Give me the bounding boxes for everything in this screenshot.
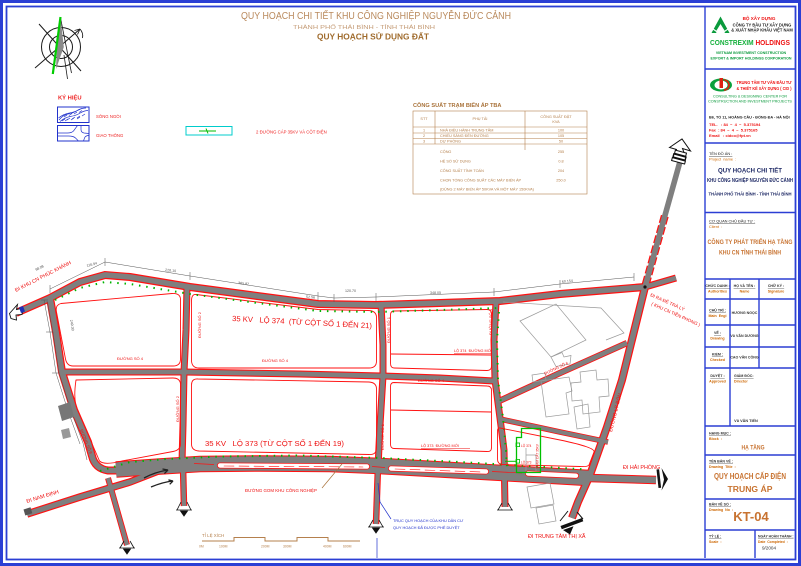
svg-text:TRẠM CẮT 35KV: TRẠM CẮT 35KV <box>535 443 540 469</box>
svg-text:1: 1 <box>423 129 425 133</box>
svg-text:CHỦ TRÌ :: CHỦ TRÌ : <box>709 308 726 313</box>
svg-text:KÝ HIỆU: KÝ HIỆU <box>58 94 82 102</box>
svg-text:HẠ TẦNG: HẠ TẦNG <box>742 445 765 452</box>
svg-text:Signature: Signature <box>768 290 785 294</box>
svg-text:0.8: 0.8 <box>558 160 563 164</box>
svg-text:50: 50 <box>559 140 563 144</box>
svg-text:& THIẾT KẾ XÂY DỰNG ( CID ): & THIẾT KẾ XÂY DỰNG ( CID ) <box>737 85 792 91</box>
svg-text:Name: Name <box>740 290 750 294</box>
svg-text:ĐƯỜNG SỐ 4: ĐƯỜNG SỐ 4 <box>262 358 289 363</box>
svg-text:ĐƯỜNG SỐ 4: ĐƯỜNG SỐ 4 <box>117 356 144 361</box>
svg-text:QUY HOẠCH CẤP ĐIỆN: QUY HOẠCH CẤP ĐIỆN <box>714 470 786 481</box>
svg-text:TRUNG ÁP: TRUNG ÁP <box>728 484 773 494</box>
svg-text:NGÀY HOÀN THÀNH :: NGÀY HOÀN THÀNH : <box>758 534 794 539</box>
svg-text:CONSTRUCTION AND INVESTMENT PR: CONSTRUCTION AND INVESTMENT PROJECTS <box>708 100 792 104</box>
svg-text:CÔNG SUẤT TRẠM BIẾN ÁP TBA: CÔNG SUẤT TRẠM BIẾN ÁP TBA <box>413 101 501 109</box>
svg-text:EXPORT & IMPORT HOLDINGS CORPO: EXPORT & IMPORT HOLDINGS CORPORATION <box>711 57 792 61</box>
svg-text:52.56: 52.56 <box>306 295 315 300</box>
svg-text:STT: STT <box>420 117 428 121</box>
svg-text:ĐI TRUNG TÂM THỊ XÃ: ĐI TRUNG TÂM THỊ XÃ <box>528 533 586 540</box>
svg-text:348.05: 348.05 <box>430 291 441 295</box>
svg-text:ĐƯỜNG GOM KHU CÔNG NGHIỆP: ĐƯỜNG GOM KHU CÔNG NGHIỆP <box>245 488 317 493</box>
svg-text:KT-04: KT-04 <box>733 509 769 524</box>
svg-text:Email : cidco@fpt.vn: Email : cidco@fpt.vn <box>709 133 751 138</box>
svg-text:9/2004: 9/2004 <box>762 546 776 551</box>
svg-text:CỘNG: CỘNG <box>440 149 451 154</box>
svg-text:255: 255 <box>558 150 564 154</box>
svg-text:KHU CÔNG NGHIỆP NGUYỄN ĐỨC CẢN: KHU CÔNG NGHIỆP NGUYỄN ĐỨC CẢNH <box>707 176 793 184</box>
svg-text:Drawing No :: Drawing No : <box>709 508 733 512</box>
svg-text:204: 204 <box>558 169 564 173</box>
svg-text:BẢN VẼ SỐ :: BẢN VẼ SỐ : <box>709 502 731 507</box>
svg-text:KHU CN TỈNH THÁI BÌNH: KHU CN TỈNH THÁI BÌNH <box>719 248 781 257</box>
svg-text:CHỌN TỔNG CÔNG SUẤT CÁC MÁY BI: CHỌN TỔNG CÔNG SUẤT CÁC MÁY BIẾN ÁP <box>440 178 521 183</box>
svg-text:CONSTREXIM HOLDINGS: CONSTREXIM HOLDINGS <box>710 38 790 47</box>
svg-text:VIETNAM INVESTMENT CONSTRUCTIO: VIETNAM INVESTMENT CONSTRUCTION <box>716 51 787 55</box>
svg-text:300M: 300M <box>283 545 292 549</box>
svg-text:2 ĐƯỜNG CÁP 35KV VÀ CỘT ĐIỆN: 2 ĐƯỜNG CÁP 35KV VÀ CỘT ĐIỆN <box>256 130 327 135</box>
svg-text:400M: 400M <box>323 545 332 549</box>
svg-text:600M: 600M <box>343 545 352 549</box>
svg-text:100M: 100M <box>219 545 228 549</box>
svg-text:100: 100 <box>558 129 564 133</box>
svg-text:& XUẤT NHẬP KHẨU VIỆT NAM: & XUẤT NHẬP KHẨU VIỆT NAM <box>731 28 793 33</box>
svg-text:(DÙNG 2 MÁY BIẾN ÁP 50KVA VÀ M: (DÙNG 2 MÁY BIẾN ÁP 50KVA VÀ MỘT MÁY 150… <box>440 187 535 192</box>
svg-text:CONSULTING & DESIGNING CENTER: CONSULTING & DESIGNING CENTER FOR <box>713 95 787 99</box>
svg-text:QUY HOẠCH SỬ DỤNG ĐẤT: QUY HOẠCH SỬ DỤNG ĐẤT <box>317 32 429 42</box>
svg-text:GIAO THÔNG: GIAO THÔNG <box>96 133 124 138</box>
svg-text:QUY HOẠCH ĐÃ ĐƯỢC PHÊ DUYỆT: QUY HOẠCH ĐÃ ĐƯỢC PHÊ DUYỆT <box>393 525 460 530</box>
svg-text:THÀNH PHỐ THÁI BÌNH - TỈNH THÁ: THÀNH PHỐ THÁI BÌNH - TỈNH THÁI BÌNH <box>293 24 435 31</box>
svg-text:CHIẾU SÁNG ĐÈN ĐƯỜNG: CHIẾU SÁNG ĐÈN ĐƯỜNG <box>440 133 489 138</box>
svg-text:2: 2 <box>423 134 425 138</box>
svg-text:TEL. : 84 − 4 − 5.375194: TEL. : 84 − 4 − 5.375194 <box>709 122 761 127</box>
svg-text:TRUNG TÂM TƯ VẤN ĐẦU TƯ: TRUNG TÂM TƯ VẤN ĐẦU TƯ <box>737 79 792 85</box>
svg-text:TỈ LỆ XÍCH: TỈ LỆ XÍCH <box>202 533 224 538</box>
svg-text:TÊN ĐỒ ÁN :: TÊN ĐỒ ÁN : <box>709 151 732 156</box>
svg-text:Main Engi: Main Engi <box>709 314 727 318</box>
svg-text:Vũ VĂN TIẾN: Vũ VĂN TIẾN <box>734 418 758 423</box>
svg-text:250.0: 250.0 <box>556 179 566 183</box>
svg-text:35 KV LỘ 373 (TỪ CỘT SỐ 1 ĐẾ: 35 KV LỘ 373 (TỪ CỘT SỐ 1 ĐẾN 19) <box>205 438 344 448</box>
svg-text:CHỮ KÝ :: CHỮ KÝ : <box>768 283 784 288</box>
svg-text:Scale :: Scale : <box>709 540 722 544</box>
svg-text:HẠNG MỤC :: HẠNG MỤC : <box>709 432 731 436</box>
svg-text:LỘ 373 ĐƯỜNG MỚI: LỘ 373 ĐƯỜNG MỚI <box>421 443 459 448</box>
svg-text:CƠ QUAN CHỦ ĐẦU TƯ :: CƠ QUAN CHỦ ĐẦU TƯ : <box>709 219 755 224</box>
svg-text:120.70: 120.70 <box>345 289 356 293</box>
svg-text:Director: Director <box>734 380 748 384</box>
svg-text:B6, TỔ 11, HOÀNG CẦU - ĐỐNG ĐA: B6, TỔ 11, HOÀNG CẦU - ĐỐNG ĐA - HÀ NỘI <box>709 115 790 120</box>
svg-text:CÔNG SUẤT ĐẶT: CÔNG SUẤT ĐẶT <box>540 114 572 119</box>
svg-text:PHỤ TẢI: PHỤ TẢI <box>473 116 488 121</box>
svg-text:KVA: KVA <box>552 120 560 124</box>
svg-text:Date Completed :: Date Completed : <box>758 540 788 544</box>
svg-text:QUY HOẠCH CHI TIẾT KHU CÔNG NG: QUY HOẠCH CHI TIẾT KHU CÔNG NGHIỆP NGUYỄ… <box>241 9 511 22</box>
svg-text:ĐƯỜNG SỐ 2: ĐƯỜNG SỐ 2 <box>197 311 202 338</box>
svg-text:Block :: Block : <box>709 437 722 441</box>
svg-text:ĐƯỜNG SỐ 4: ĐƯỜNG SỐ 4 <box>418 378 445 383</box>
svg-text:BỘ XÂY DỰNG: BỘ XÂY DỰNG <box>743 14 776 21</box>
svg-text:DỰ PHÒNG: DỰ PHÒNG <box>440 139 461 144</box>
svg-text:HƯƠNG NGỌC: HƯƠNG NGỌC <box>732 311 758 315</box>
svg-text:SÔNG NGÒI: SÔNG NGÒI <box>96 114 121 119</box>
svg-text:ĐI HẢI PHÒNG: ĐI HẢI PHÒNG <box>623 464 660 471</box>
svg-text:GIÁM ĐỐC:: GIÁM ĐỐC: <box>734 373 754 378</box>
svg-text:200M: 200M <box>261 545 270 549</box>
svg-text:ĐƯỜNG SỐ 1: ĐƯỜNG SỐ 1 <box>380 423 385 450</box>
svg-text:Client :: Client : <box>709 224 722 229</box>
svg-text:KIỂM :: KIỂM : <box>712 352 723 357</box>
svg-text:LỘ 374 ĐƯỜNG MỚI: LỘ 374 ĐƯỜNG MỚI <box>454 348 492 353</box>
svg-text:TỶ LỆ :: TỶ LỆ : <box>709 534 721 539</box>
svg-text:LỘ 374: LỘ 374 <box>521 443 532 448</box>
svg-text:0M: 0M <box>199 545 204 549</box>
svg-text:3: 3 <box>423 140 425 144</box>
svg-text:Fax : 84 − 4 − 5.375165: Fax : 84 − 4 − 5.375165 <box>709 128 758 133</box>
svg-text:Drawing: Drawing <box>710 337 724 341</box>
svg-text:CAO VĂN CÔNG: CAO VĂN CÔNG <box>730 355 759 360</box>
svg-text:HỆ SỐ SỬ DỤNG: HỆ SỐ SỬ DỤNG <box>440 159 471 164</box>
svg-text:TRỤC QUY HOẠCH CỦA KHU DÂN CƯ: TRỤC QUY HOẠCH CỦA KHU DÂN CƯ <box>393 518 464 523</box>
svg-text:Drawing Title :: Drawing Title : <box>709 465 736 469</box>
svg-text:ĐƯỜNG SỐ 2: ĐƯỜNG SỐ 2 <box>175 395 180 422</box>
svg-text:VẼ :: VẼ : <box>714 330 721 335</box>
svg-text:Checked: Checked <box>710 358 725 362</box>
svg-text:Project name :: Project name : <box>709 157 736 162</box>
svg-text:ĐƯỜNG SỐ 4: ĐƯỜNG SỐ 4 <box>488 308 493 335</box>
svg-text:NHÀ ĐIỀU HÀNH TRUNG TÂM: NHÀ ĐIỀU HÀNH TRUNG TÂM <box>440 128 493 133</box>
svg-text:Vũ VĂN DƯƠNG: Vũ VĂN DƯƠNG <box>730 333 758 338</box>
svg-text:LỘ 373: LỘ 373 <box>521 460 532 465</box>
svg-text:CÔNG SUẤT TÍNH TOÁN: CÔNG SUẤT TÍNH TOÁN <box>440 168 484 173</box>
svg-text:Authorities: Authorities <box>708 290 727 294</box>
svg-text:ĐƯỜNG SỐ 1: ĐƯỜNG SỐ 1 <box>386 316 391 343</box>
svg-text:TÊN BẢN VẼ :: TÊN BẢN VẼ : <box>709 459 733 464</box>
svg-text:DUYỆT :: DUYỆT : <box>710 373 724 378</box>
svg-text:105: 105 <box>558 134 564 138</box>
svg-text:CHỨC DANH :: CHỨC DANH : <box>705 283 729 288</box>
svg-text:HỌ VÀ TÊN :: HỌ VÀ TÊN : <box>734 283 756 288</box>
svg-text:Approved: Approved <box>709 380 726 384</box>
